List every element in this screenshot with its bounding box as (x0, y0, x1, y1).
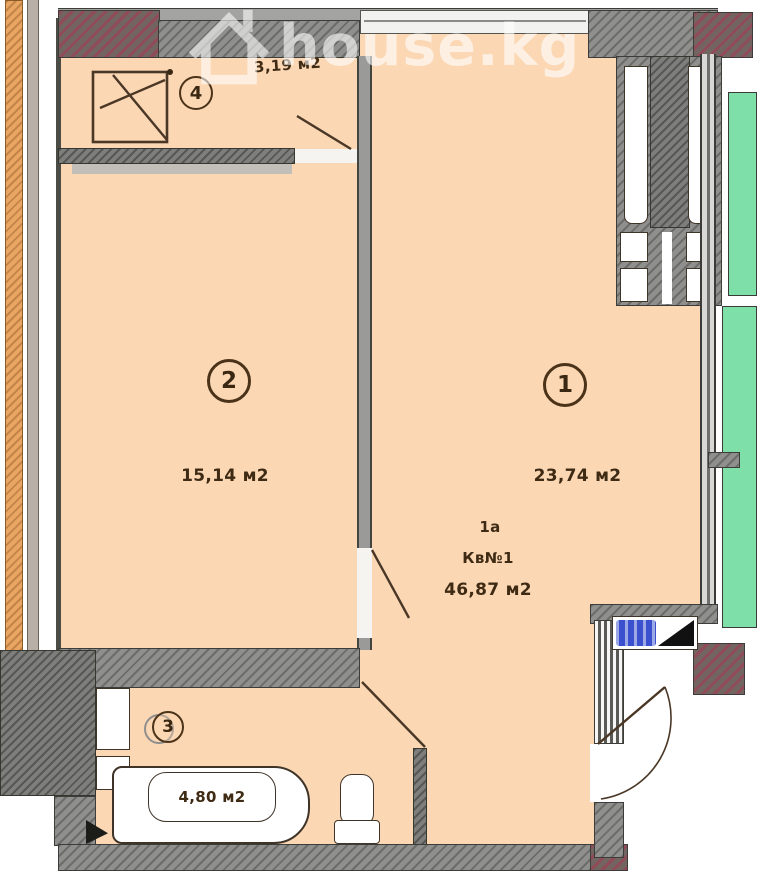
room1-right-wall (700, 54, 716, 612)
bathroom-right-wall (413, 748, 427, 848)
room1-area-label: 23,74 м2 (500, 466, 655, 486)
toilet-bowl (340, 774, 374, 826)
bottom-wall (58, 844, 600, 871)
room-vestibule (420, 650, 600, 850)
bathroom-top-wall (58, 648, 360, 688)
hall-door-opening (295, 149, 357, 163)
bathroom-door-zone (360, 648, 420, 750)
room2-area-label: 15,14 м2 (150, 466, 300, 486)
room1-number-circle: 1 (543, 363, 587, 407)
corridor-left-wall-lower (594, 802, 624, 858)
marker-blue-badge (616, 620, 656, 646)
vent-slot (620, 232, 648, 262)
wall-sill-strip (72, 164, 292, 174)
vent-center-gap (662, 232, 672, 304)
room3-number: 3 (162, 717, 174, 737)
unit-number-label: Кв№1 (428, 549, 548, 567)
door-opening-rooms-1-2 (357, 548, 372, 638)
bathtub-label-box: 4,80 м2 (148, 772, 276, 822)
room1-number: 1 (557, 372, 573, 398)
left-wall-line (56, 18, 61, 650)
toilet-tank (334, 820, 380, 844)
watermark-text: house.kg (279, 13, 580, 79)
unit-total-area-label: 46,87 м2 (418, 580, 558, 600)
column-top-left (58, 10, 160, 58)
neighbor-area-top (728, 92, 757, 296)
vent-slot (620, 268, 648, 302)
watermark: house.kg (185, 0, 705, 92)
floor-plan: 4,80 м2 4 3,19 м2 2 15,14 м2 1 23,74 м2 … (0, 0, 757, 871)
room2-number-circle: 2 (207, 359, 251, 403)
hall-bottom-wall (58, 148, 295, 164)
exterior-insulation-strip (5, 0, 23, 660)
unit-type-label: 1а (440, 518, 540, 536)
room3-area-label: 4,80 м2 (178, 788, 245, 806)
house-icon (185, 4, 273, 88)
entrance-door-opening (590, 744, 626, 802)
washer-unit (96, 688, 130, 750)
neighbor-divider-tab (708, 452, 740, 468)
room-living-2 (60, 148, 360, 668)
room3-number-circle: 3 (152, 711, 184, 743)
corridor-column (693, 643, 745, 695)
exterior-layer-strip (27, 0, 39, 660)
room2-number: 2 (221, 368, 237, 394)
bathroom-left-wall (0, 650, 96, 796)
